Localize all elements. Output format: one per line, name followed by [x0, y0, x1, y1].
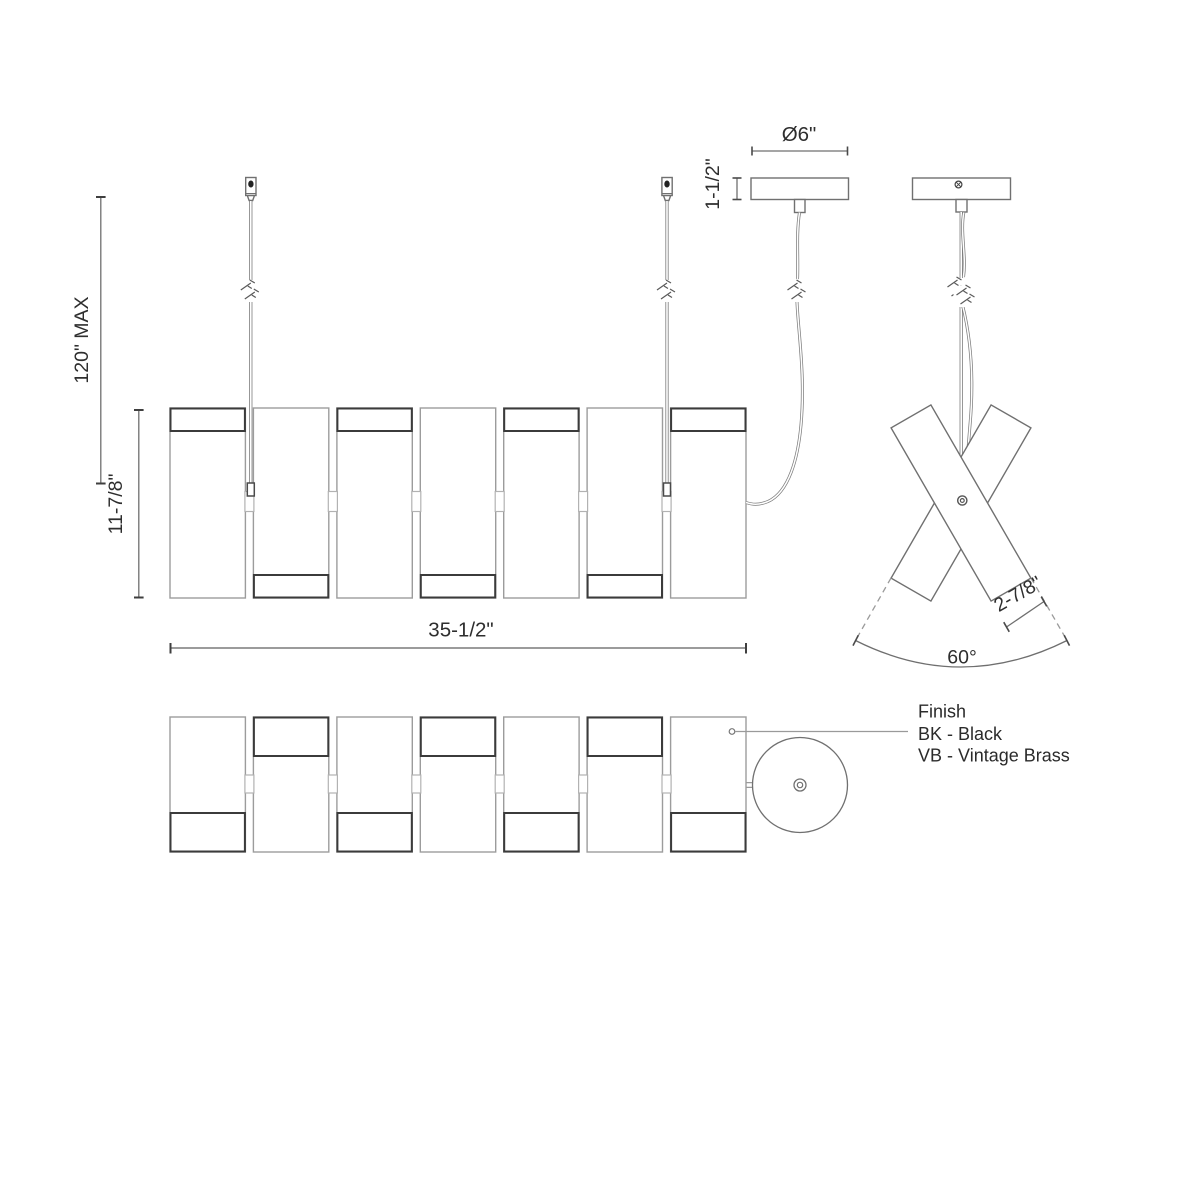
- gripper-neck: [664, 196, 671, 201]
- joint-tab: [495, 492, 504, 512]
- blade-front-5-endcap: [504, 409, 578, 432]
- blade-front-2: [253, 408, 328, 598]
- plan-view: Finish BK - Black VB - Vintage Brass: [170, 702, 1070, 853]
- dim-fixture-length: 35-1/2": [171, 619, 747, 654]
- front-blades: [170, 408, 746, 598]
- blade-plan-7-endcap: [671, 813, 745, 852]
- canopy-body: [751, 178, 849, 200]
- cord-eyelet: [958, 496, 967, 505]
- blade-plan-6-endcap: [588, 718, 662, 757]
- blade-plan-5-endcap: [504, 813, 578, 852]
- rod-connector: [247, 483, 254, 496]
- dim-canopy-height: 1-1/2": [702, 158, 742, 209]
- plan-canopy: [747, 738, 848, 833]
- technical-drawing: 120" MAX 11-7/8" 35-1/2": [0, 0, 1200, 1200]
- blade-front-6: [587, 408, 662, 598]
- joint-tab: [579, 775, 588, 793]
- finish-legend-title: Finish: [918, 702, 966, 722]
- dim-label-canopy-diameter: Ø6": [782, 123, 817, 146]
- canopy-stem: [795, 200, 806, 213]
- dim-label-suspension-max: 120" MAX: [71, 296, 93, 383]
- rod-connector: [664, 483, 671, 496]
- blade-front-7: [671, 408, 746, 598]
- joint-tab: [245, 775, 254, 793]
- blade-front-4: [420, 408, 495, 598]
- dim-tick: [1041, 597, 1047, 607]
- finish-option-black: BK - Black: [918, 724, 1003, 744]
- cord-lower: [746, 302, 802, 504]
- gripper-hole: [248, 181, 253, 188]
- power-cord: [746, 213, 812, 505]
- leader-dot: [729, 729, 735, 735]
- blade-front-5: [504, 408, 579, 598]
- angle-extension-left: [856, 578, 892, 641]
- cord-break-icon: [785, 280, 812, 302]
- front-elevation: 120" MAX 11-7/8" 35-1/2": [71, 178, 746, 654]
- joint-tab: [412, 775, 421, 793]
- blade-front-4-endcap: [421, 575, 495, 598]
- arc-tick: [853, 635, 858, 645]
- arc-tick: [1064, 635, 1069, 645]
- dim-label-spread-angle: 60°: [947, 647, 977, 669]
- spec-sheet: 120" MAX 11-7/8" 35-1/2": [0, 0, 1200, 1200]
- joint-tab: [328, 775, 337, 793]
- gripper-neck: [247, 196, 254, 201]
- end-canopy-body: [913, 178, 1011, 200]
- dim-label-fixture-length: 35-1/2": [428, 619, 493, 642]
- dim-canopy-diameter: Ø6": [752, 123, 848, 156]
- joint-tab: [579, 492, 588, 512]
- joint-tab: [328, 492, 337, 512]
- plan-stem-ring: [794, 779, 806, 791]
- blade-front-2-endcap: [254, 575, 328, 598]
- blade-front-7-endcap: [671, 409, 745, 432]
- blade-front-3-endcap: [337, 409, 411, 432]
- dim-label-fixture-height: 11-7/8": [105, 474, 127, 535]
- blade-front-3: [337, 408, 412, 598]
- joint-tab: [495, 775, 504, 793]
- finish-option-vintage-brass: VB - Vintage Brass: [918, 746, 1070, 766]
- blade-plan-3-endcap: [337, 813, 411, 852]
- end-canopy-stem: [956, 200, 967, 213]
- rod-break-icon: [654, 280, 681, 302]
- dim-tick: [1004, 622, 1010, 632]
- blade-front-1-endcap: [171, 409, 245, 432]
- blade-front-6-endcap: [588, 575, 662, 598]
- end-view: 60° 2-7/8": [853, 178, 1070, 669]
- joint-tab: [412, 492, 421, 512]
- cord-break-icon: [954, 285, 981, 307]
- blade-plan-1-endcap: [171, 813, 245, 852]
- gripper-hole: [664, 181, 669, 188]
- joint-tab: [662, 775, 671, 793]
- dim-suspension-max: 120" MAX: [71, 197, 106, 484]
- cord-lower-core: [746, 302, 802, 504]
- blade-plan-2-endcap: [254, 718, 328, 757]
- dim-label-canopy-height: 1-1/2": [702, 158, 724, 209]
- plan-blades: [170, 717, 746, 852]
- dim-fixture-height: 11-7/8": [105, 410, 144, 598]
- blade-front-1: [170, 408, 245, 598]
- rod-break-icon: [238, 280, 265, 302]
- blade-plan-4-endcap: [421, 718, 495, 757]
